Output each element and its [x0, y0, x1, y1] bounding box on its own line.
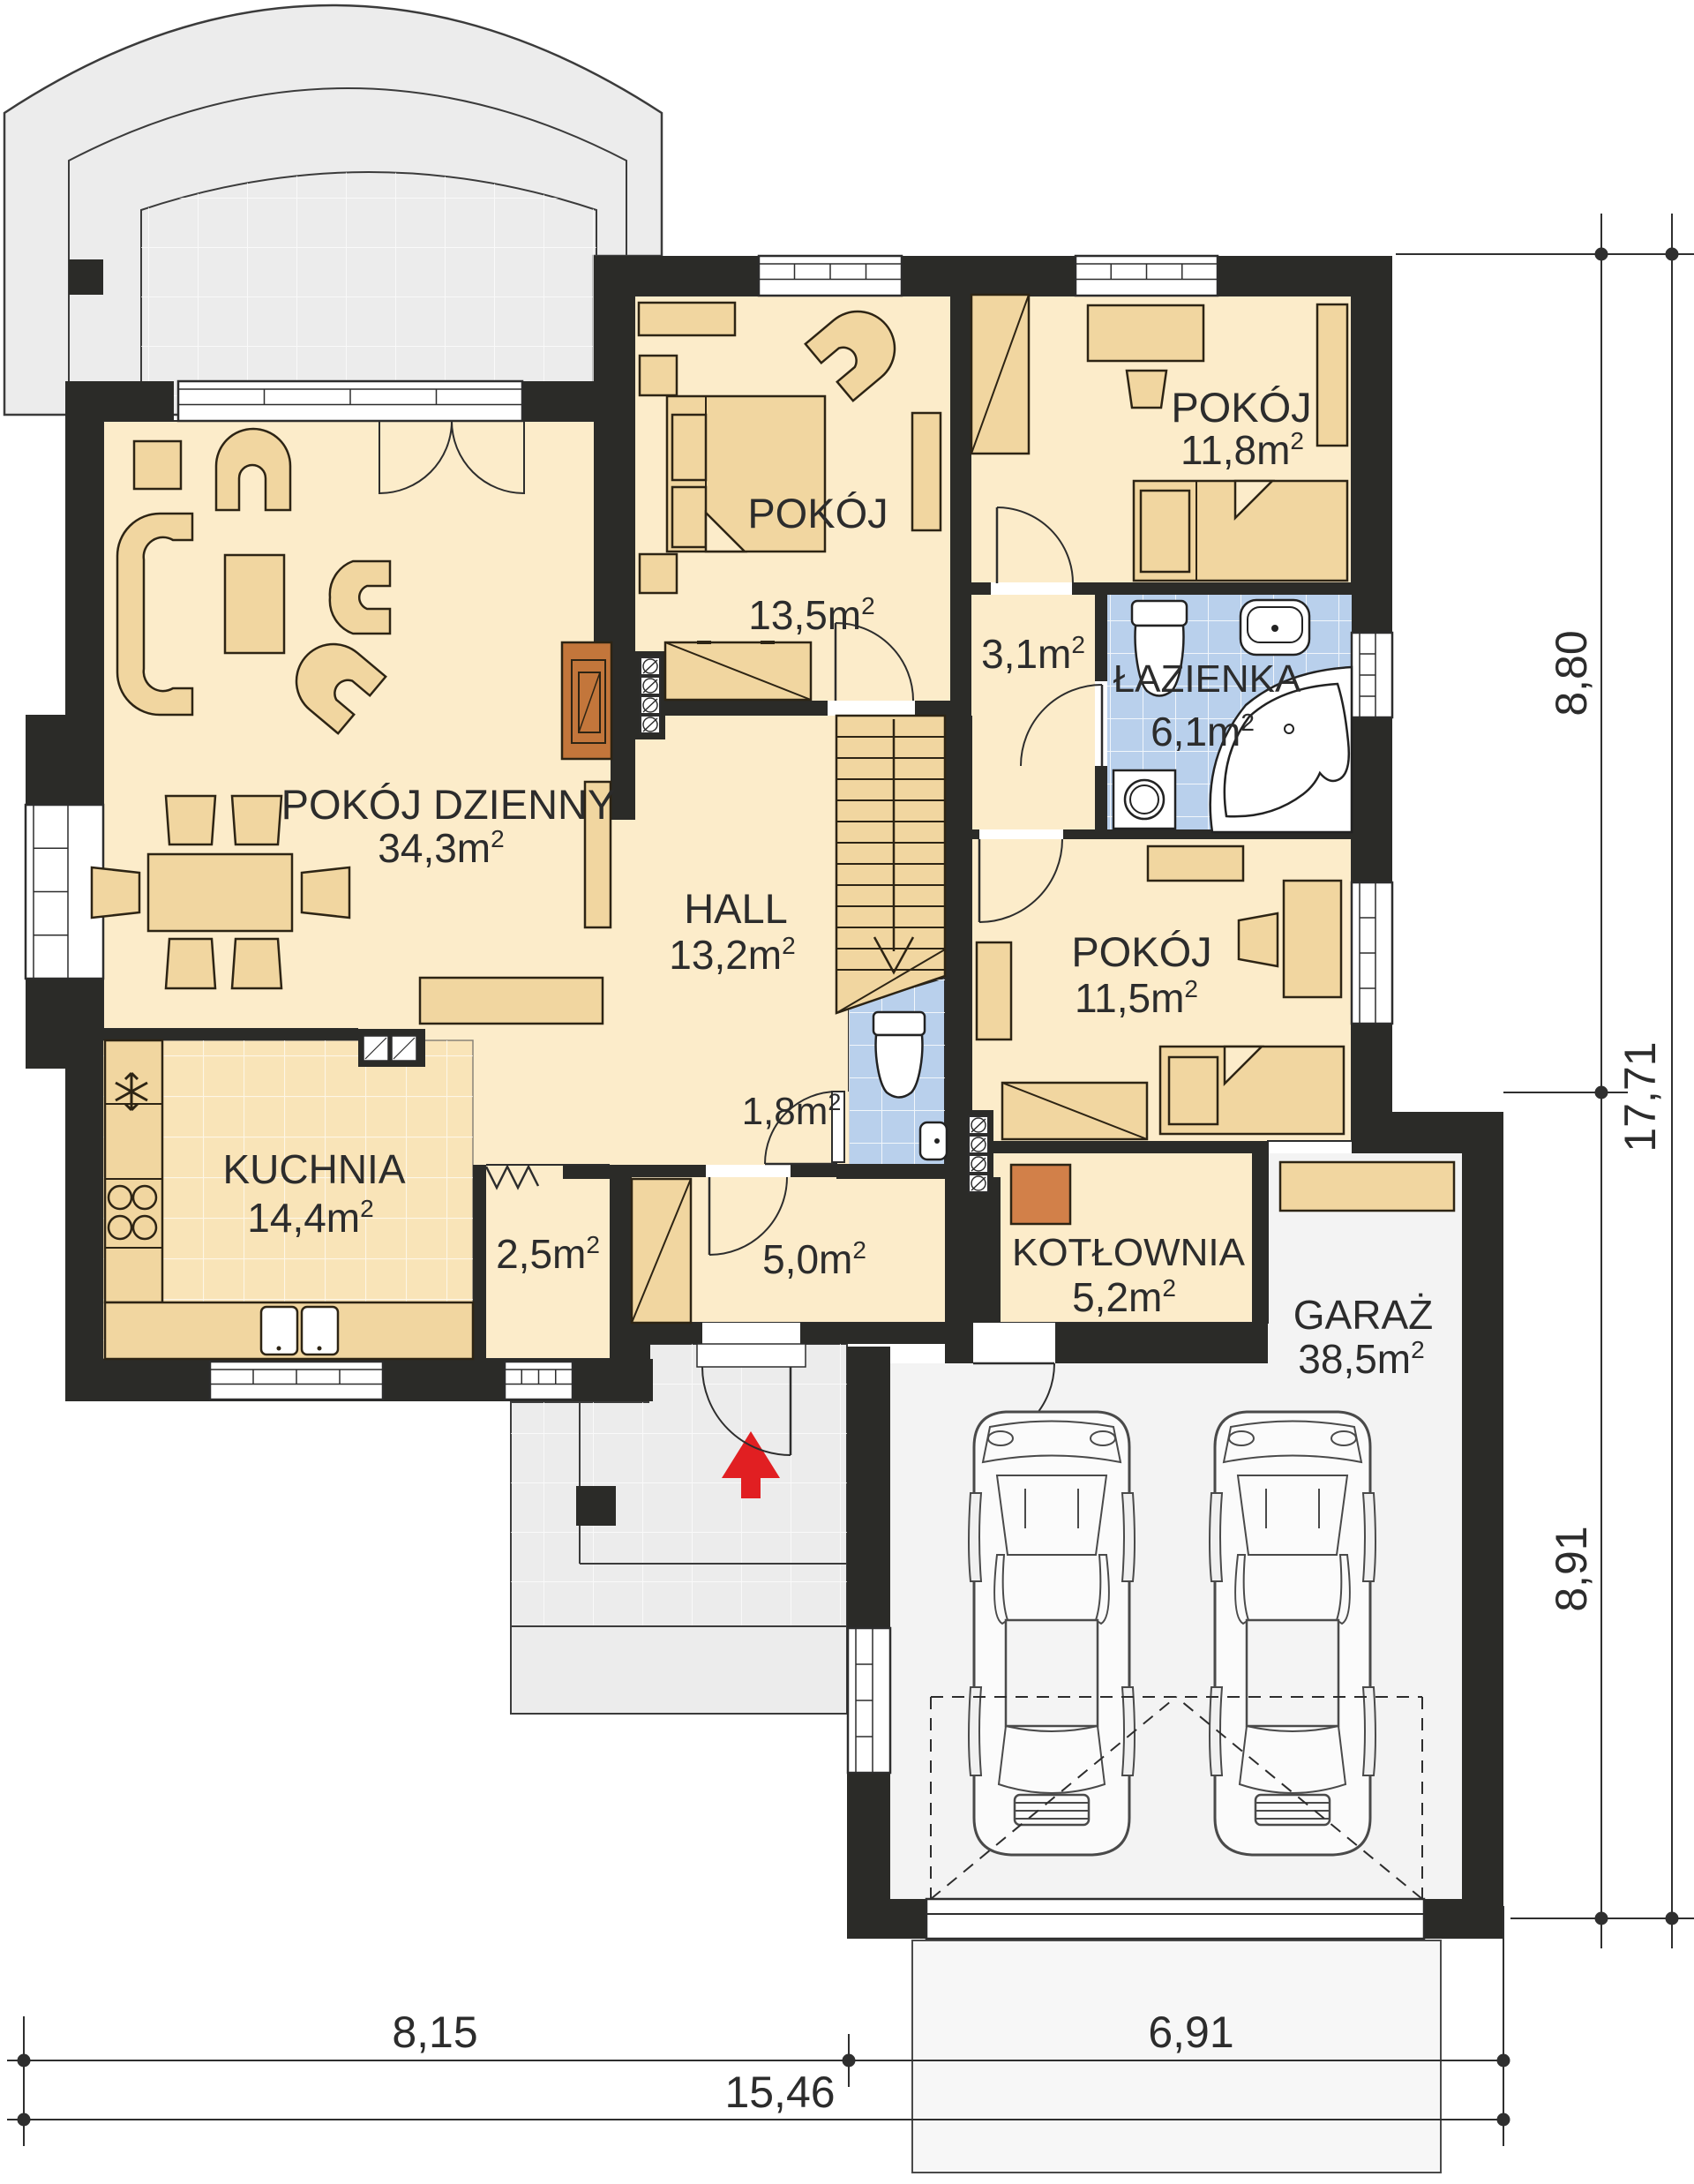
svg-text:3,1m2: 3,1m2: [981, 631, 1085, 677]
svg-text:6,1m2: 6,1m2: [1151, 709, 1255, 754]
svg-text:8,91: 8,91: [1547, 1526, 1596, 1611]
svg-text:14,4m2: 14,4m2: [247, 1195, 373, 1241]
svg-text:POKÓJ DZIENNY: POKÓJ DZIENNY: [281, 781, 616, 828]
svg-text:5,2m2: 5,2m2: [1072, 1274, 1176, 1320]
svg-text:11,8m2: 11,8m2: [1181, 427, 1304, 473]
svg-text:2,5m2: 2,5m2: [496, 1231, 600, 1277]
svg-text:POKÓJ: POKÓJ: [1171, 384, 1311, 431]
svg-text:17,71: 17,71: [1615, 1041, 1665, 1152]
svg-text:1,8m2: 1,8m2: [742, 1089, 842, 1133]
svg-text:8,80: 8,80: [1547, 630, 1596, 716]
svg-text:15,46: 15,46: [724, 2068, 835, 2117]
svg-text:13,2m2: 13,2m2: [669, 932, 795, 978]
svg-text:POKÓJ: POKÓJ: [1071, 928, 1211, 975]
svg-text:38,5m2: 38,5m2: [1298, 1336, 1424, 1382]
svg-text:ŁAZIENKA: ŁAZIENKA: [1113, 657, 1301, 701]
svg-text:POKÓJ: POKÓJ: [747, 490, 888, 537]
svg-text:GARAŻ: GARAŻ: [1293, 1292, 1433, 1338]
svg-text:34,3m2: 34,3m2: [378, 825, 504, 871]
svg-text:11,5m2: 11,5m2: [1075, 975, 1198, 1021]
svg-text:6,91: 6,91: [1148, 2008, 1233, 2057]
svg-text:KUCHNIA: KUCHNIA: [222, 1146, 405, 1192]
svg-text:13,5m2: 13,5m2: [748, 592, 874, 638]
svg-text:HALL: HALL: [684, 885, 788, 932]
svg-text:8,15: 8,15: [392, 2008, 477, 2057]
svg-text:KOTŁOWNIA: KOTŁOWNIA: [1012, 1231, 1246, 1274]
svg-text:5,0m2: 5,0m2: [762, 1236, 866, 1282]
